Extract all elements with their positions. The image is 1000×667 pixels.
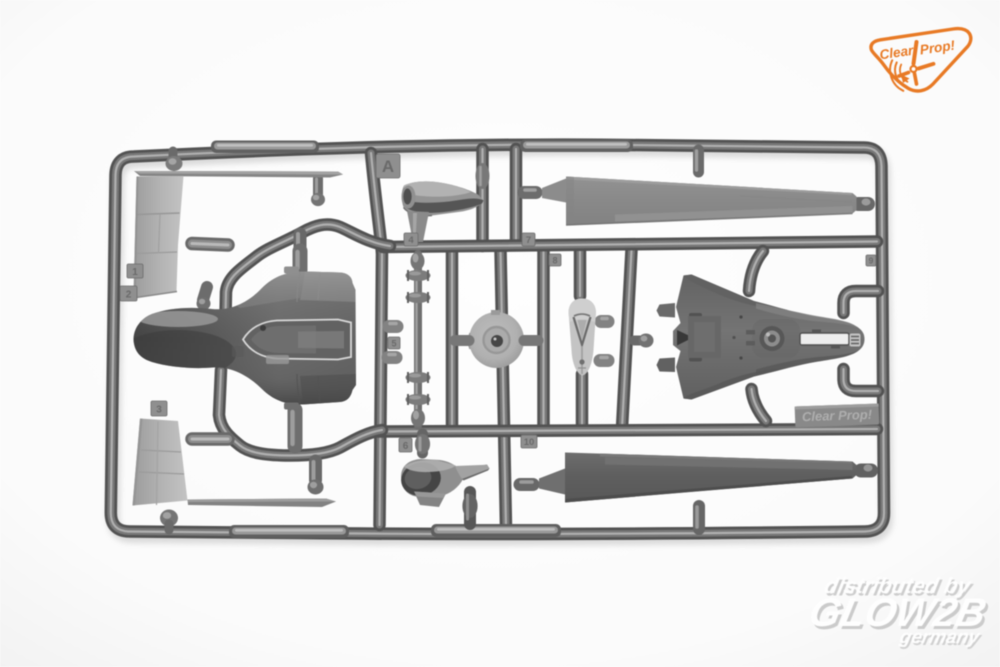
svg-text:A: A bbox=[382, 157, 394, 176]
svg-text:9: 9 bbox=[869, 256, 874, 266]
svg-text:4: 4 bbox=[408, 235, 414, 246]
svg-text:5: 5 bbox=[391, 339, 396, 349]
svg-text:2: 2 bbox=[126, 290, 132, 301]
svg-text:Clear Prop!: Clear Prop! bbox=[802, 407, 873, 424]
svg-text:6: 6 bbox=[403, 441, 409, 452]
svg-text:7: 7 bbox=[526, 235, 531, 246]
svg-text:8: 8 bbox=[552, 256, 557, 266]
svg-text:germany: germany bbox=[897, 627, 983, 648]
svg-text:1: 1 bbox=[132, 267, 138, 278]
svg-text:3: 3 bbox=[156, 405, 162, 416]
svg-text:10: 10 bbox=[524, 437, 535, 448]
